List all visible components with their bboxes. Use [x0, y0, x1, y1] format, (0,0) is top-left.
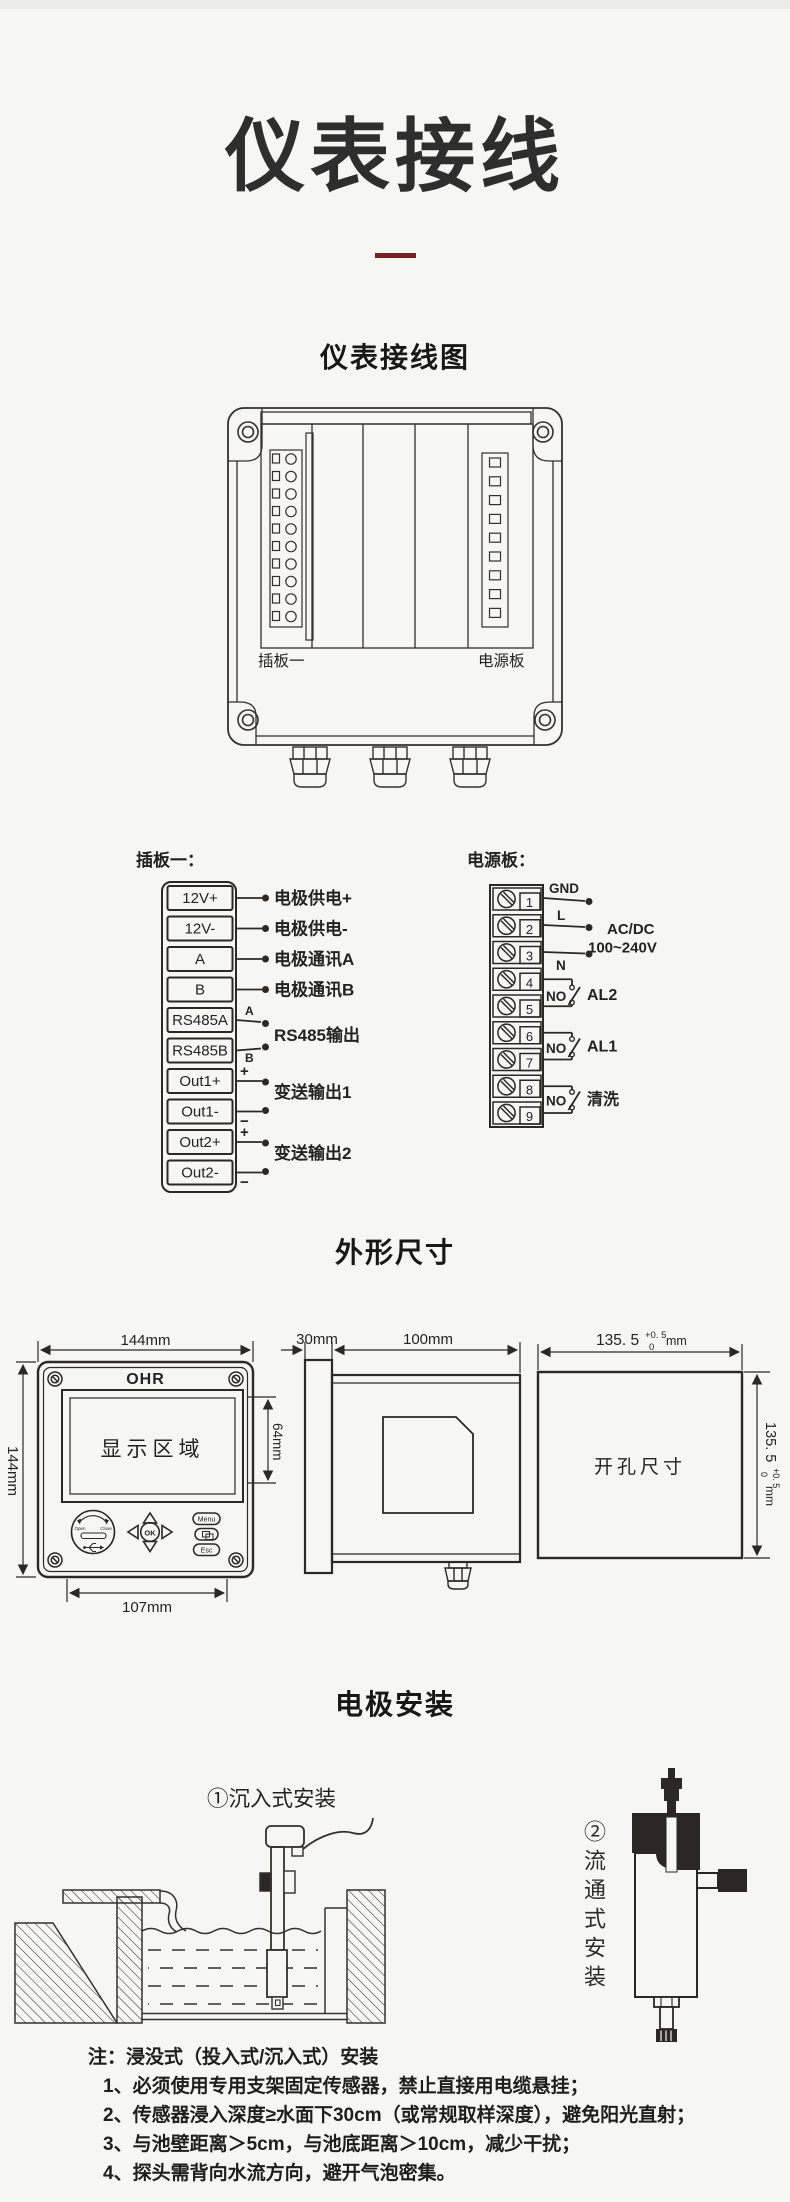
wire-label: 电极通讯B: [274, 980, 354, 1000]
flow-label: ②流通式安装: [577, 1820, 609, 1994]
wire-label: 变送输出1: [274, 1082, 351, 1102]
device-wiring-diagram: 插板一 电源板: [160, 400, 630, 800]
dim-front-height: 144mm: [4, 1446, 21, 1496]
immersion-label: ①沉入式安装: [207, 1787, 336, 1811]
terminal-number: 5: [526, 1002, 533, 1017]
terminal-label: RS485B: [172, 1043, 228, 1060]
water-lines: [148, 1950, 318, 2004]
side-view: [281, 1342, 520, 1589]
electrode-install-diagram: ①沉入式安装: [0, 1760, 790, 2060]
wire-label: 变送输出2: [274, 1143, 351, 1163]
terminal-label: 12V-: [185, 921, 216, 938]
wire-label: RS485输出: [274, 1025, 360, 1045]
cutout-right-dim: 135. 5 +0. 5 0 mm: [759, 1422, 781, 1506]
slot1-terminal-strip: [270, 433, 313, 640]
terminal-label: 12V+: [182, 890, 218, 907]
dim-display-height: 64mm: [270, 1423, 285, 1461]
left-arrow-icon: [128, 1526, 138, 1539]
plugboard-terminals: 12V+ 12V- A B RS485A RS485B Out1+ Out1- …: [172, 890, 228, 1182]
l-label: L: [557, 908, 565, 923]
dimension-drawings: 144mm 144mm 64mm 107mm OHR 显示区域 Open Clo…: [0, 1310, 790, 1630]
terminal-label: Out1+: [179, 1073, 221, 1090]
svg-text:135. 5: 135. 5: [762, 1422, 778, 1462]
wire-label: 电极供电-: [274, 919, 348, 939]
power-label: 电源板: [478, 652, 525, 670]
dial-close-label: Close: [100, 1526, 112, 1531]
no-label: NO: [546, 1094, 566, 1109]
terminal-label: Out2-: [181, 1165, 219, 1182]
terminal-number: 1: [526, 895, 533, 910]
power-terminal-strip: [482, 453, 508, 627]
svg-text:0: 0: [759, 1472, 769, 1477]
terminal-number: 2: [526, 922, 533, 937]
terminal-label: B: [195, 982, 205, 999]
installation-notes: 注：浸没式（投入式/沉入式）安装 1、必须使用专用支架固定传感器，禁止直接用电缆…: [88, 2043, 695, 2188]
terminal-number: 3: [526, 949, 533, 964]
wire-label: 电极通讯A: [274, 949, 354, 969]
front-corner-screws: [48, 1372, 243, 1567]
esc-button-label: Esc: [201, 1548, 213, 1555]
terminal-number: 8: [526, 1082, 533, 1097]
terminal-label: A: [195, 951, 205, 968]
plugboard-wire-labels: 电极供电+ 电极供电- 电极通讯A 电极通讯B RS485输出 变送输出1 变送…: [274, 888, 360, 1163]
ok-button-label: OK: [144, 1529, 156, 1538]
section-heading-wiring: 仪表接线图: [0, 336, 790, 376]
flow-cell-drawing: [632, 1768, 747, 2042]
terminal-label: RS485A: [172, 1012, 228, 1029]
plus-sign: +: [240, 1063, 249, 1080]
up-arrow-icon: [144, 1513, 157, 1523]
plus-sign: +: [240, 1124, 249, 1141]
terminal-label: Out2+: [179, 1134, 221, 1151]
svg-text:135. 5: 135. 5: [596, 1332, 639, 1349]
terminal-label: Out1-: [181, 1104, 219, 1121]
powerboard-title: 电源板：: [467, 850, 535, 870]
cable-gland-icon: [290, 747, 490, 787]
note-title: 注：浸没式（投入式/沉入式）安装: [88, 2043, 695, 2072]
dim-depth: 100mm: [403, 1331, 453, 1348]
note-item: 2、传感器浸入深度≥水面下30cm（或常规取样深度），避免阳光直射；: [103, 2101, 695, 2130]
terminal-number: 6: [526, 1029, 533, 1044]
terminal-number: 7: [526, 1056, 533, 1071]
menu-button-label: Menu: [198, 1517, 216, 1524]
svg-text:0: 0: [649, 1342, 654, 1353]
powerboard-wires: [543, 898, 585, 1113]
right-arrow-icon: [162, 1526, 172, 1539]
brand-logo: OHR: [126, 1371, 165, 1388]
side-gland: [445, 1562, 471, 1589]
no-label: NO: [546, 989, 566, 1004]
dim-front-bottom: 107mm: [122, 1599, 172, 1616]
svg-text:+0. 5: +0. 5: [645, 1330, 666, 1341]
terminal-detail-diagram: 插板一： 12V+ 12V- A: [90, 830, 700, 1200]
dim-front-width: 144mm: [120, 1332, 170, 1349]
svg-text:mm: mm: [666, 1334, 687, 1348]
wire-dots: [262, 895, 269, 1176]
cutout-label: 开孔尺寸: [594, 1456, 686, 1478]
gnd-label: GND: [549, 881, 579, 896]
down-arrow-icon: [144, 1542, 157, 1552]
page-title: 仪表接线: [0, 92, 790, 208]
al1-label: AL1: [587, 1039, 617, 1056]
dial-arrow: [105, 1519, 109, 1525]
acdc-line2: 100~240V: [588, 940, 657, 957]
dim-bezel: 30mm: [296, 1331, 338, 1348]
note-item: 1、必须使用专用支架固定传感器，禁止直接用电缆悬挂；: [103, 2072, 695, 2101]
product-wiring-page: 仪表接线 仪表接线图: [0, 0, 790, 2202]
immersion-drawing: [15, 1818, 385, 2023]
usb-icon: [85, 1544, 100, 1552]
cutout-view: [538, 1344, 770, 1558]
dial-arrow: [77, 1519, 81, 1525]
cutout-top-dim: 135. 5 +0. 5 0 mm: [596, 1330, 687, 1353]
n-label: N: [556, 958, 566, 973]
display-area-label: 显示区域: [101, 1437, 205, 1461]
sensor-clamp: [260, 1873, 271, 1891]
dial-open-label: Open: [74, 1526, 86, 1531]
clean-label: 清洗: [587, 1090, 619, 1109]
al2-label: AL2: [587, 987, 617, 1004]
section-heading-install: 电极安装: [0, 1683, 790, 1723]
terminal-number: 9: [526, 1109, 533, 1124]
acdc-line1: AC/DC: [607, 921, 655, 938]
no-label: NO: [546, 1041, 566, 1056]
terminal-number: 4: [526, 975, 533, 990]
slot1-label: 插板一: [258, 652, 305, 670]
powerboard-numbers: 1 2 3 4 5 6 7 8 9: [526, 895, 533, 1124]
powerboard-block: [490, 885, 585, 1127]
note-item: 3、与池壁距离＞5cm，与池底距离＞10cm，减少干扰；: [103, 2130, 695, 2159]
section-heading-dimensions: 外形尺寸: [0, 1231, 790, 1271]
accent-dash: [375, 253, 416, 258]
wire-label: 电极供电+: [274, 888, 352, 908]
svg-text:mm: mm: [763, 1486, 777, 1506]
minus-sign: −: [240, 1174, 249, 1191]
rs485-a: A: [245, 1004, 254, 1018]
top-strip: [0, 0, 790, 9]
note-item: 4、探头需背向水流方向，避开气泡密集。: [103, 2159, 695, 2188]
plugboard-title: 插板一：: [136, 850, 204, 870]
